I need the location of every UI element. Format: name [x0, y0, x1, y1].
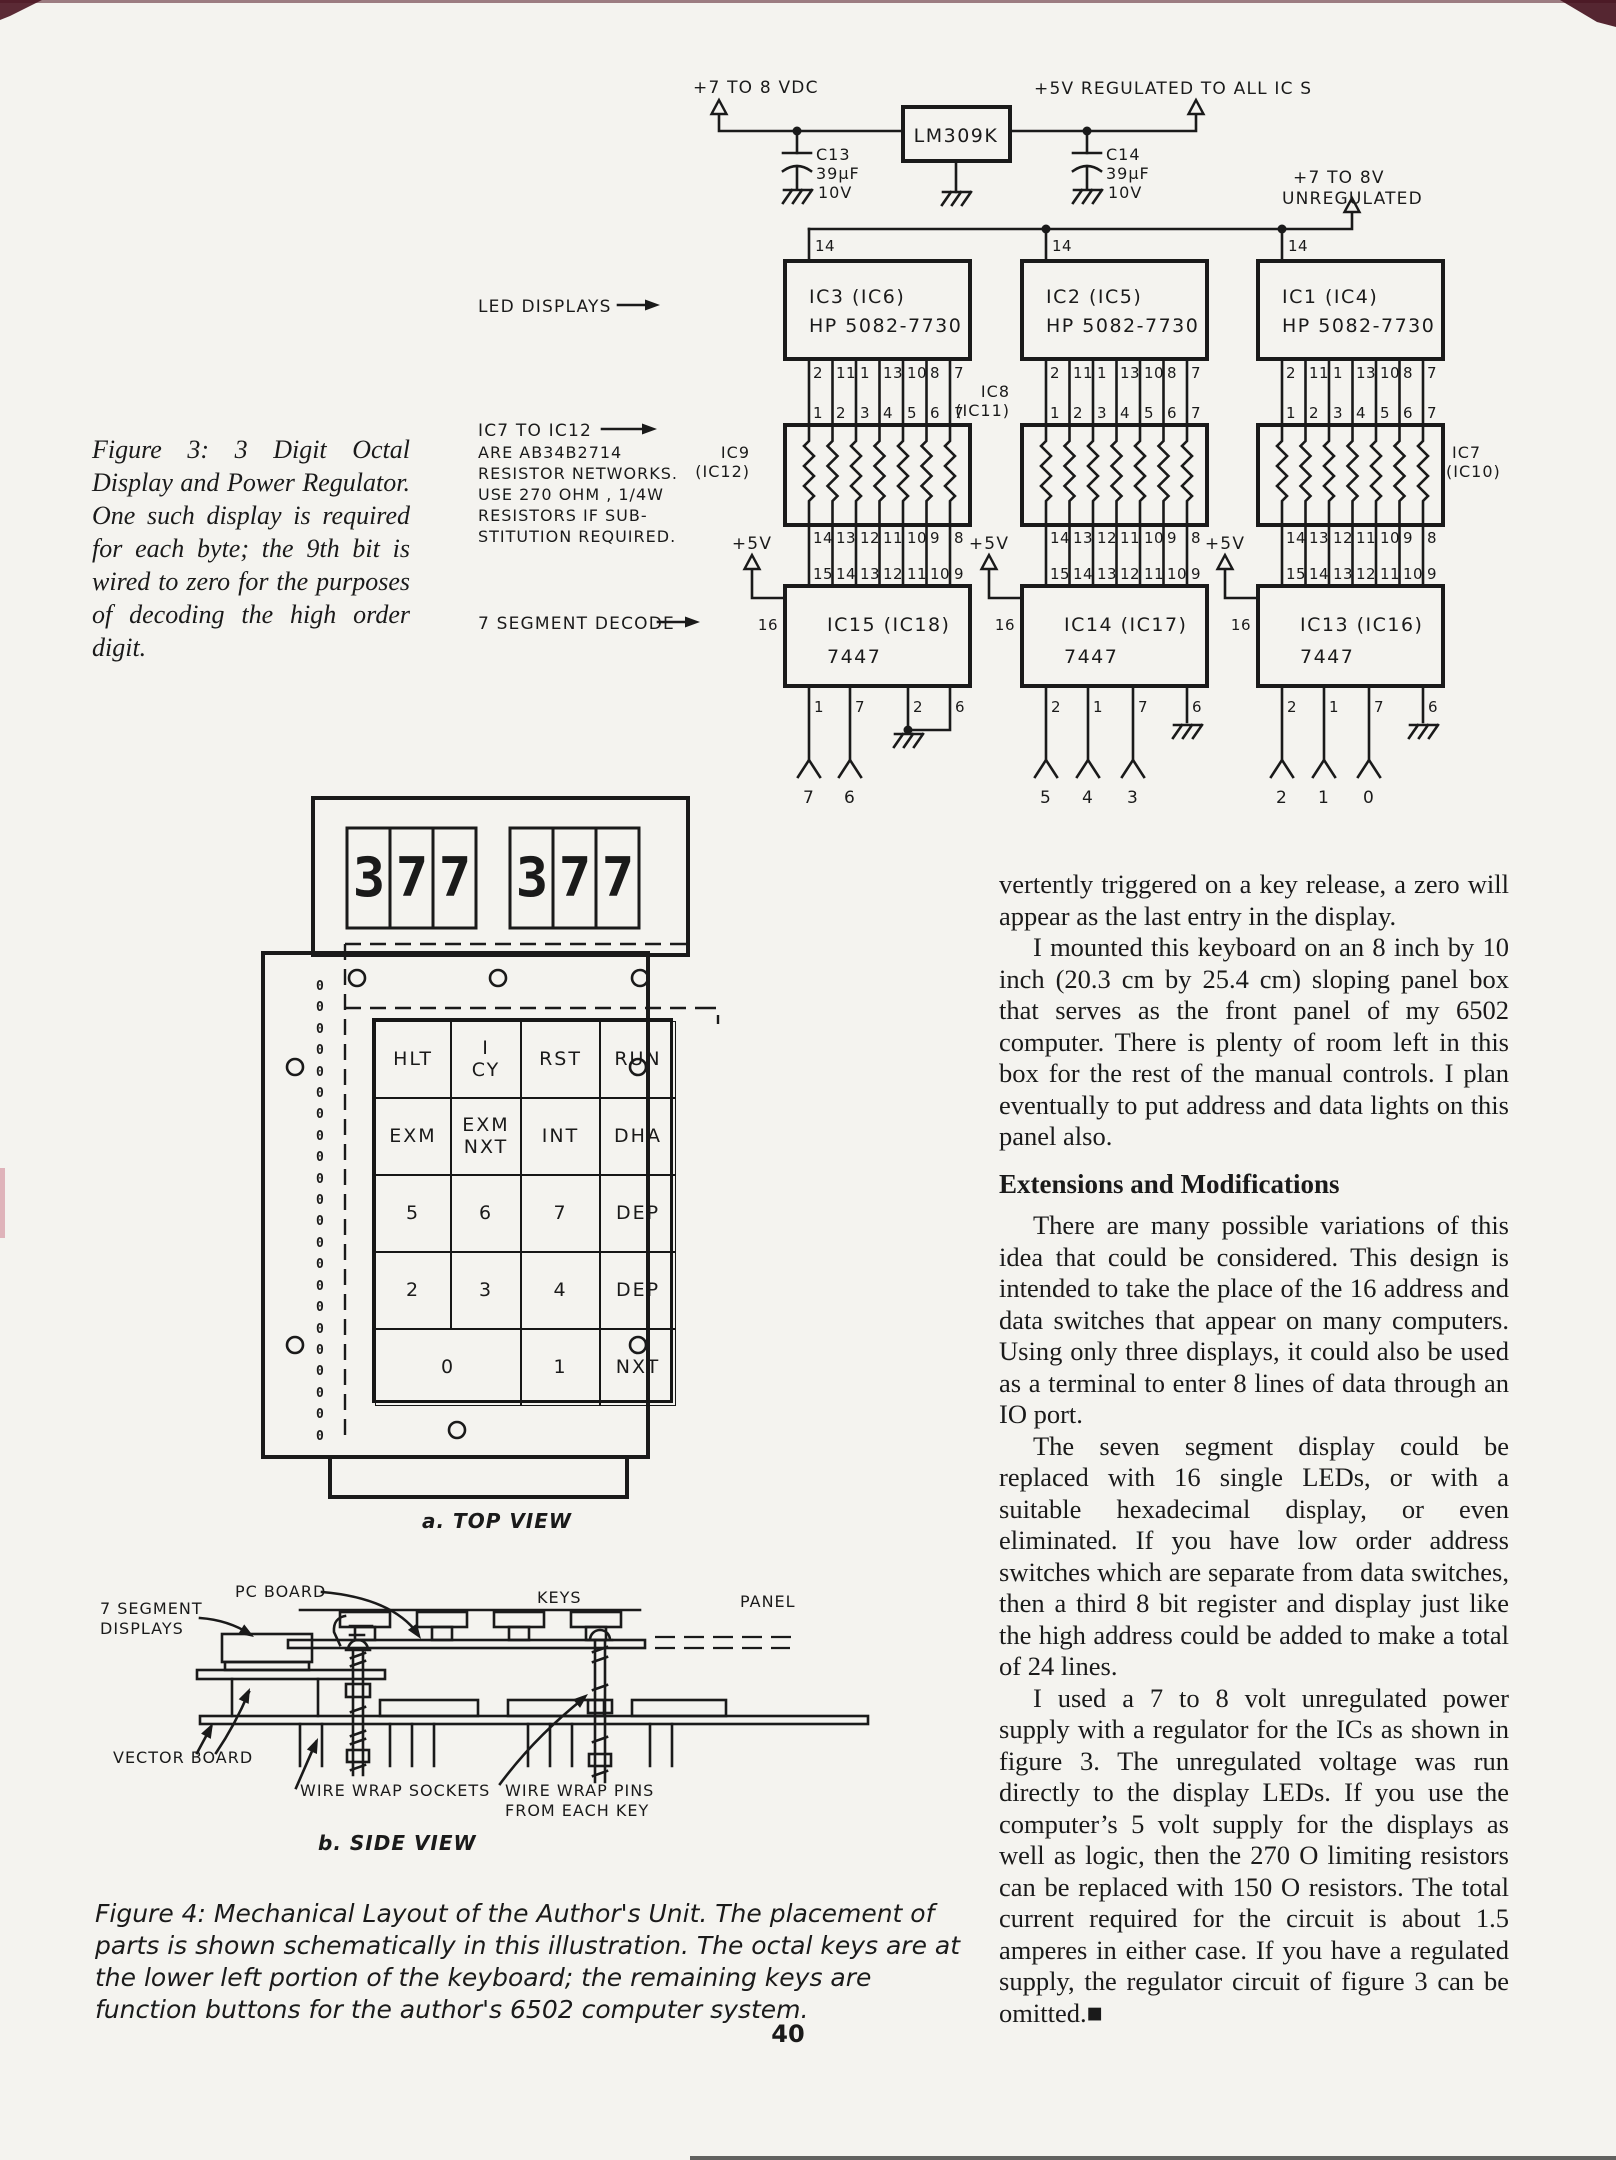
pin-label: 11 — [1356, 529, 1376, 547]
bolt-left — [346, 1640, 370, 1775]
c13-value: 39μF — [816, 164, 860, 183]
pc-board-label: PC BOARD — [235, 1582, 326, 1601]
key-4: 4 — [521, 1252, 600, 1329]
decoder-part-label: 7447 — [1300, 646, 1354, 668]
pin-label: 14 — [1309, 565, 1329, 583]
plus5v-label: +5V — [969, 534, 1009, 554]
pin-label: 1 — [1329, 698, 1339, 716]
pin-label: 13 — [883, 364, 903, 382]
pin-label: 10 — [907, 529, 927, 547]
pin-label: 1 — [1050, 404, 1060, 422]
vector-board-label: VECTOR BOARD — [113, 1748, 253, 1767]
pin-label: 10 — [907, 364, 927, 382]
pin-label: 6 — [1403, 404, 1413, 422]
pin-label: 9 — [930, 529, 940, 547]
pin-label: 10 — [1380, 364, 1400, 382]
key-3: 3 — [451, 1252, 521, 1329]
pin-label: 13 — [1120, 364, 1140, 382]
pin-label: 2 — [1051, 698, 1061, 716]
key-dha: DHA — [600, 1098, 676, 1175]
pin-label: 11 — [1120, 529, 1140, 547]
pin-label: 13 — [1073, 529, 1093, 547]
pin-label: 8 — [930, 364, 940, 382]
display-digit: 7 — [439, 846, 472, 909]
pin-label: 3 — [860, 404, 870, 422]
pin-label: 1 — [1097, 364, 1107, 382]
seg-displays-label-1: 7 SEGMENT — [100, 1599, 203, 1618]
network1-label2: (IC12) — [695, 462, 750, 481]
pin-label: 1 — [813, 404, 823, 422]
pin-label: 6 — [1167, 404, 1177, 422]
pin-label: 2 — [1286, 364, 1296, 382]
network2-label: IC8 — [981, 382, 1010, 401]
decoder-part-label: 7447 — [827, 646, 881, 668]
display-part-label: HP 5082-7730 — [809, 315, 962, 337]
leader-lines — [197, 1592, 592, 1788]
pin-label: 5 — [1144, 404, 1154, 422]
pin-label: 8 — [1191, 529, 1201, 547]
pin-label: 11 — [883, 529, 903, 547]
pin14-label: 14 — [1288, 237, 1308, 255]
decoder-ic-label: IC14 (IC17) — [1064, 614, 1187, 636]
regulated-output-label: +5V REGULATED TO ALL IC S — [1034, 79, 1312, 99]
input-voltage-label: +7 TO 8 VDC — [693, 78, 819, 98]
panel-dashes — [655, 1637, 800, 1648]
article-paragraph: There are many possible variations of th… — [999, 1210, 1509, 1431]
key-exm: EXM — [375, 1098, 451, 1175]
pin-label: 7 — [1427, 364, 1437, 382]
seg-displays-label-2: DISPLAYS — [100, 1619, 184, 1638]
key-run: RUN — [600, 1021, 676, 1098]
pin-label: 15 — [1286, 565, 1306, 583]
key-exm-nxt: EXM NXT — [451, 1098, 521, 1175]
pin-label: 7 — [1191, 404, 1201, 422]
ground-icon — [1173, 725, 1202, 738]
pin-label: 15 — [1050, 565, 1070, 583]
pin-label: 12 — [1333, 529, 1353, 547]
signal-label: 6 — [844, 788, 856, 808]
pin14-label: 14 — [815, 237, 835, 255]
wire-wrap-sockets-shapes — [380, 1700, 726, 1716]
connector-fork-icon — [1313, 760, 1335, 777]
resistor-note-5: RESISTORS IF SUB- — [478, 506, 648, 525]
pin-label: 13 — [860, 565, 880, 583]
pin-label: 10 — [1380, 529, 1400, 547]
resistor-note-6: STITUTION REQUIRED. — [478, 527, 676, 546]
power-regulator-section: LM309K +7 TO 8 VDC +5V REGULATED TO ALL … — [693, 78, 1423, 234]
pin-label: 4 — [1120, 404, 1130, 422]
power-arrow-icon — [712, 100, 727, 114]
figure3-schematic: LM309K +7 TO 8 VDC +5V REGULATED TO ALL … — [478, 78, 1501, 808]
digit-column-2: 14 IC2 (IC5) HP 5082-7730 2 11 1 13 10 8… — [969, 229, 1207, 808]
resistor-note-1: IC7 TO IC12 — [478, 421, 592, 441]
key-dep-lower: DEP — [600, 1252, 676, 1329]
pin-label: 11 — [1144, 565, 1164, 583]
led-displays-label: LED DISPLAYS — [478, 297, 612, 317]
bolt-right — [588, 1630, 612, 1782]
key-1: 1 — [521, 1329, 600, 1406]
figure3-caption: Figure 3: 3 Digit Octal Display and Powe… — [92, 433, 410, 664]
pin-label: 6 — [955, 698, 965, 716]
pin-label: 7 — [855, 698, 865, 716]
key-2: 2 — [375, 1252, 451, 1329]
page-number: 40 — [758, 2020, 818, 2048]
pin-label: 9 — [1427, 565, 1437, 583]
regulator-label: LM309K — [914, 125, 999, 147]
display-digit: 3 — [516, 846, 549, 909]
decoder-part-label: 7447 — [1064, 646, 1118, 668]
key-1cy: I CY — [451, 1021, 521, 1098]
resistor-note-4: USE 270 OHM , 1/4W — [478, 485, 664, 504]
pin-label: 5 — [1380, 404, 1390, 422]
decoder-ic-label: IC15 (IC18) — [827, 614, 950, 636]
pin-label: 2 — [836, 404, 846, 422]
pin-label: 6 — [930, 404, 940, 422]
display-ic-label: IC3 (IC6) — [809, 286, 905, 308]
pin-label: 10 — [1144, 529, 1164, 547]
pin-label: 2 — [1287, 698, 1297, 716]
pin-label: 10 — [1403, 565, 1423, 583]
article-text-column: vertently triggered on a key release, a … — [999, 869, 1509, 2029]
key-nxt: NXT — [600, 1329, 676, 1406]
signal-label: 3 — [1127, 788, 1139, 808]
arrow-icon — [685, 617, 700, 628]
article-paragraph: I mounted this keyboard on an 8 inch by … — [999, 932, 1509, 1153]
pin-label: 1 — [1093, 698, 1103, 716]
display-digit: 7 — [559, 846, 592, 909]
pin-label: 7 — [1374, 698, 1384, 716]
panel-label: PANEL — [740, 1592, 796, 1611]
pin-label: 12 — [883, 565, 903, 583]
pin-label: 7 — [1138, 698, 1148, 716]
display-digit: 7 — [396, 846, 429, 909]
key-6: 6 — [451, 1175, 521, 1252]
pin-label: 6 — [1192, 698, 1202, 716]
article-heading: Extensions and Modifications — [999, 1169, 1509, 1201]
signal-label: 0 — [1363, 788, 1375, 808]
connector-fork-icon — [1035, 760, 1057, 777]
ground-icon — [1409, 725, 1438, 738]
pin-label: 11 — [1309, 364, 1329, 382]
connector-fork-icon — [1077, 760, 1099, 777]
pin-label: 3 — [1097, 404, 1107, 422]
pin-label: 9 — [954, 565, 964, 583]
key-rst: RST — [521, 1021, 600, 1098]
article-paragraph: vertently triggered on a key release, a … — [999, 869, 1509, 932]
keys-label: KEYS — [537, 1588, 582, 1607]
panel-hole-column: 0 0 0 0 0 0 0 0 0 0 0 0 0 0 0 0 0 0 0 0 … — [316, 976, 324, 1447]
ground-icon — [942, 192, 971, 205]
pin-label: 12 — [1120, 565, 1140, 583]
connector-fork-icon — [798, 760, 820, 777]
display-digit: 7 — [602, 846, 635, 909]
resistor-note-2: ARE AB34B2714 — [478, 443, 622, 462]
digit-column-3: 14 IC1 (IC4) HP 5082-7730 2 11 1 13 10 8… — [1205, 229, 1443, 808]
pin-label: 4 — [883, 404, 893, 422]
c14-value: 39μF — [1106, 164, 1150, 183]
ground-icon — [1073, 190, 1102, 203]
pin-label: 1 — [1286, 404, 1296, 422]
pin16-label: 16 — [995, 616, 1015, 634]
ground-icon — [894, 734, 923, 747]
key-0: 0 — [375, 1329, 521, 1406]
signal-label: 4 — [1082, 788, 1094, 808]
unregulated-label-2: UNREGULATED — [1282, 189, 1423, 209]
decoder-ic-label: IC13 (IC16) — [1300, 614, 1423, 636]
article-paragraph: I used a 7 to 8 volt unregulated power s… — [999, 1683, 1509, 2030]
pin-label: 11 — [907, 565, 927, 583]
pin-label: 3 — [1333, 404, 1343, 422]
connector-fork-icon — [839, 760, 861, 777]
pin-label: 7 — [1191, 364, 1201, 382]
connector-fork-icon — [1358, 760, 1380, 777]
signal-label: 1 — [1318, 788, 1330, 808]
pin-label: 1 — [1333, 364, 1343, 382]
pin-label: 2 — [1309, 404, 1319, 422]
pin-label: 9 — [1191, 565, 1201, 583]
wire-wrap-pins-label-2: FROM EACH KEY — [505, 1801, 649, 1820]
pin-label: 9 — [1403, 529, 1413, 547]
pin-label: 14 — [1050, 529, 1070, 547]
key-shapes — [340, 1612, 621, 1640]
pin-label: 8 — [954, 529, 964, 547]
pin-label: 8 — [1427, 529, 1437, 547]
pin14-label: 14 — [1052, 237, 1072, 255]
pin-label: 14 — [1073, 565, 1093, 583]
network3-label2: (IC10) — [1446, 462, 1501, 481]
resistor-note-3: RESISTOR NETWORKS. — [478, 464, 678, 483]
figure4-caption: Figure 4: Mechanical Layout of the Autho… — [95, 1898, 980, 2026]
pin-label: 2 — [813, 364, 823, 382]
c13-name: C13 — [816, 145, 851, 164]
network1-label: IC9 — [721, 443, 750, 462]
display-part-label: HP 5082-7730 — [1282, 315, 1435, 337]
signal-label: 2 — [1276, 788, 1288, 808]
pin-label: 10 — [930, 565, 950, 583]
pin-label: 10 — [1144, 364, 1164, 382]
key-int: INT — [521, 1098, 600, 1175]
pin-label: 13 — [1309, 529, 1329, 547]
pin-label: 12 — [860, 529, 880, 547]
digit-column-1: 14 IC3 (IC6) HP 5082-7730 2 11 1 13 10 8… — [732, 229, 970, 808]
wire-wrap-pins-label-1: WIRE WRAP PINS — [505, 1781, 654, 1800]
pin-label: 7 — [954, 404, 964, 422]
key-hlt: HLT — [375, 1021, 451, 1098]
pin-label: 5 — [907, 404, 917, 422]
figure4-side-view: 7 SEGMENT DISPLAYS PC BOARD KEYS PANEL V… — [100, 1582, 868, 1855]
signal-label: 5 — [1040, 788, 1052, 808]
plus5v-label: +5V — [732, 534, 772, 554]
keypad: HLT I CY RST RUN EXM EXM NXT INT DHA 5 6… — [372, 1018, 673, 1403]
pin-label: 1 — [860, 364, 870, 382]
display-part-label: HP 5082-7730 — [1046, 315, 1199, 337]
seven-segment-display-cells: 3 7 7 3 7 7 — [347, 828, 639, 928]
pin-label: 11 — [1073, 364, 1093, 382]
pin-label: 10 — [1167, 565, 1187, 583]
arrow-icon — [645, 300, 660, 311]
article-paragraph: The seven segment display could be repla… — [999, 1431, 1509, 1683]
pin-label: 6 — [1428, 698, 1438, 716]
unregulated-label-1: +7 TO 8V — [1293, 168, 1385, 188]
wire-wrap-pins-shapes — [300, 1724, 672, 1766]
pin16-label: 16 — [1231, 616, 1251, 634]
key-dep-upper: DEP — [600, 1175, 676, 1252]
pin-label: 11 — [1380, 565, 1400, 583]
top-view-caption: a. TOP VIEW — [422, 1509, 572, 1533]
pin-label: 14 — [836, 565, 856, 583]
connector-fork-icon — [1122, 760, 1144, 777]
magazine-page: LM309K +7 TO 8 VDC +5V REGULATED TO ALL … — [0, 0, 1616, 2160]
pin-label: 2 — [913, 698, 923, 716]
pin-label: 4 — [1356, 404, 1366, 422]
c14-volts: 10V — [1108, 183, 1142, 202]
pin-label: 12 — [1097, 529, 1117, 547]
arrow-icon — [642, 424, 657, 435]
key-7: 7 — [521, 1175, 600, 1252]
pin-label: 14 — [813, 529, 833, 547]
side-view-caption: b. SIDE VIEW — [318, 1831, 477, 1855]
pin-label: 7 — [954, 364, 964, 382]
seven-segment-decode-label: 7 SEGMENT DECODE — [478, 614, 675, 634]
pin-label: 12 — [1356, 565, 1376, 583]
network3-label: IC7 — [1452, 443, 1481, 462]
pin-label: 2 — [1050, 364, 1060, 382]
c13-volts: 10V — [818, 183, 852, 202]
display-ic-label: IC2 (IC5) — [1046, 286, 1142, 308]
pin-label: 8 — [1167, 364, 1177, 382]
key-5: 5 — [375, 1175, 451, 1252]
wire-wrap-sockets-label: WIRE WRAP SOCKETS — [300, 1781, 490, 1800]
power-arrow-icon — [1189, 100, 1204, 114]
pin-label: 8 — [1403, 364, 1413, 382]
pin-label: 13 — [1356, 364, 1376, 382]
display-digit: 3 — [353, 846, 386, 909]
connector-fork-icon — [1271, 760, 1293, 777]
pin-label: 13 — [836, 529, 856, 547]
plus5v-label: +5V — [1205, 534, 1245, 554]
pin-label: 1 — [814, 698, 824, 716]
display-assembly-side — [197, 1616, 385, 1716]
pin-label: 7 — [1427, 404, 1437, 422]
pin-label: 15 — [813, 565, 833, 583]
pin16-label: 16 — [758, 616, 778, 634]
signal-label: 7 — [803, 788, 815, 808]
pin-label: 11 — [836, 364, 856, 382]
pin-label: 13 — [1097, 565, 1117, 583]
display-ic-label: IC1 (IC4) — [1282, 286, 1378, 308]
ground-icon — [783, 190, 812, 203]
c14-name: C14 — [1106, 145, 1141, 164]
pin-label: 14 — [1286, 529, 1306, 547]
pin-label: 9 — [1167, 529, 1177, 547]
panel-base-lip — [330, 1457, 627, 1497]
pin-label: 2 — [1073, 404, 1083, 422]
pin-label: 13 — [1333, 565, 1353, 583]
